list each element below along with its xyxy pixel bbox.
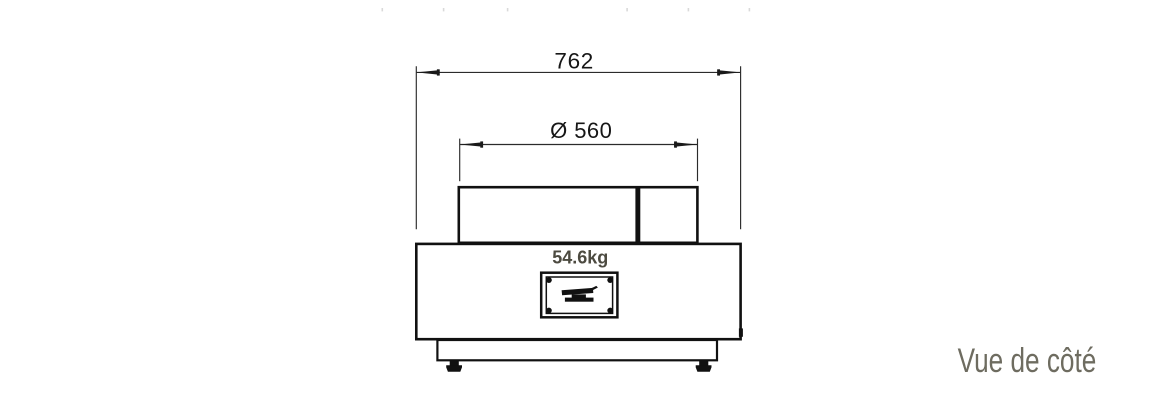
svg-text:54.6kg: 54.6kg — [552, 247, 608, 267]
svg-text:Ø 560: Ø 560 — [550, 118, 612, 143]
svg-text:Vue de côté: Vue de côté — [958, 342, 1097, 380]
svg-text:762: 762 — [554, 48, 594, 73]
